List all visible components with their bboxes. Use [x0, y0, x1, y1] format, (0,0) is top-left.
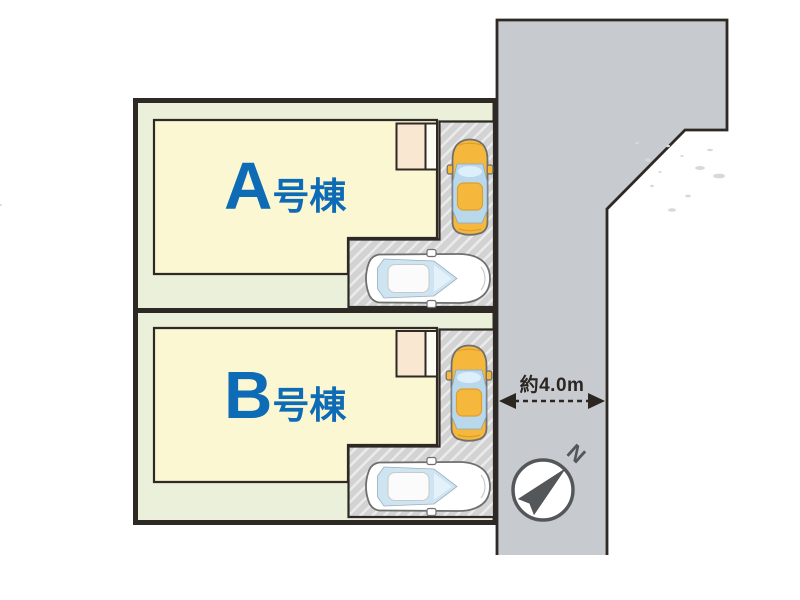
site-plan-drawing	[0, 0, 800, 600]
yellow-car-top-icon	[447, 140, 493, 235]
north-arrow-icon	[513, 460, 573, 520]
yellow-car-top-icon	[446, 346, 492, 441]
white-car-top-icon	[366, 458, 490, 516]
site-plan-canvas: A 号棟 B 号棟 約4.0m N	[0, 0, 800, 600]
road-width-label: 約4.0m	[496, 370, 608, 397]
white-car-top-icon	[366, 250, 490, 308]
porch-a	[397, 124, 438, 170]
porch-b	[397, 331, 438, 377]
